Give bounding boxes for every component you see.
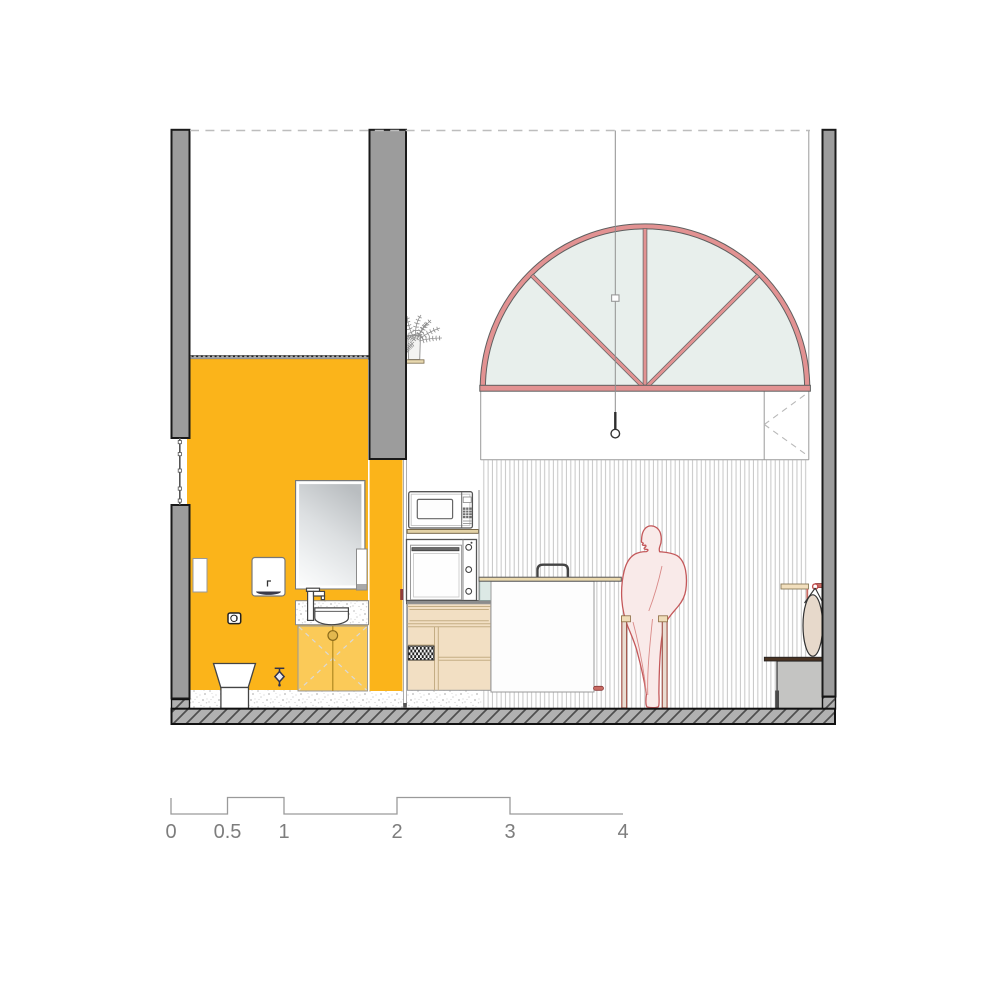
svg-text:1: 1 bbox=[278, 821, 289, 843]
svg-text:0.5: 0.5 bbox=[214, 821, 242, 843]
svg-text:3: 3 bbox=[504, 821, 515, 843]
svg-text:0: 0 bbox=[165, 821, 176, 843]
svg-text:2: 2 bbox=[391, 821, 402, 843]
svg-text:4: 4 bbox=[617, 821, 628, 843]
